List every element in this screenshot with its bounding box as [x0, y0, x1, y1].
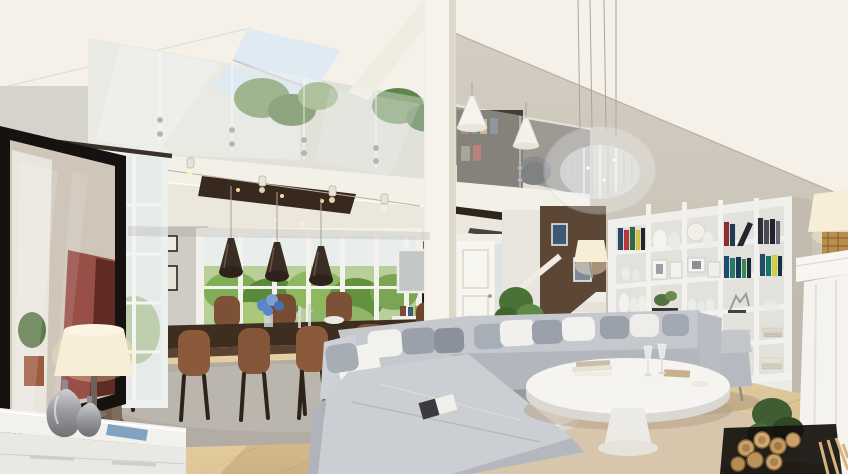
- door-handle: [488, 294, 492, 298]
- scene-root: [0, 0, 848, 474]
- lamp-shade: [54, 330, 134, 376]
- stair-wall-picture: [552, 224, 567, 245]
- chaise-pillow-gray: [324, 342, 360, 374]
- wall-mirror: [398, 250, 428, 292]
- log-basket: [720, 424, 848, 474]
- interior-render-photo: [0, 0, 848, 474]
